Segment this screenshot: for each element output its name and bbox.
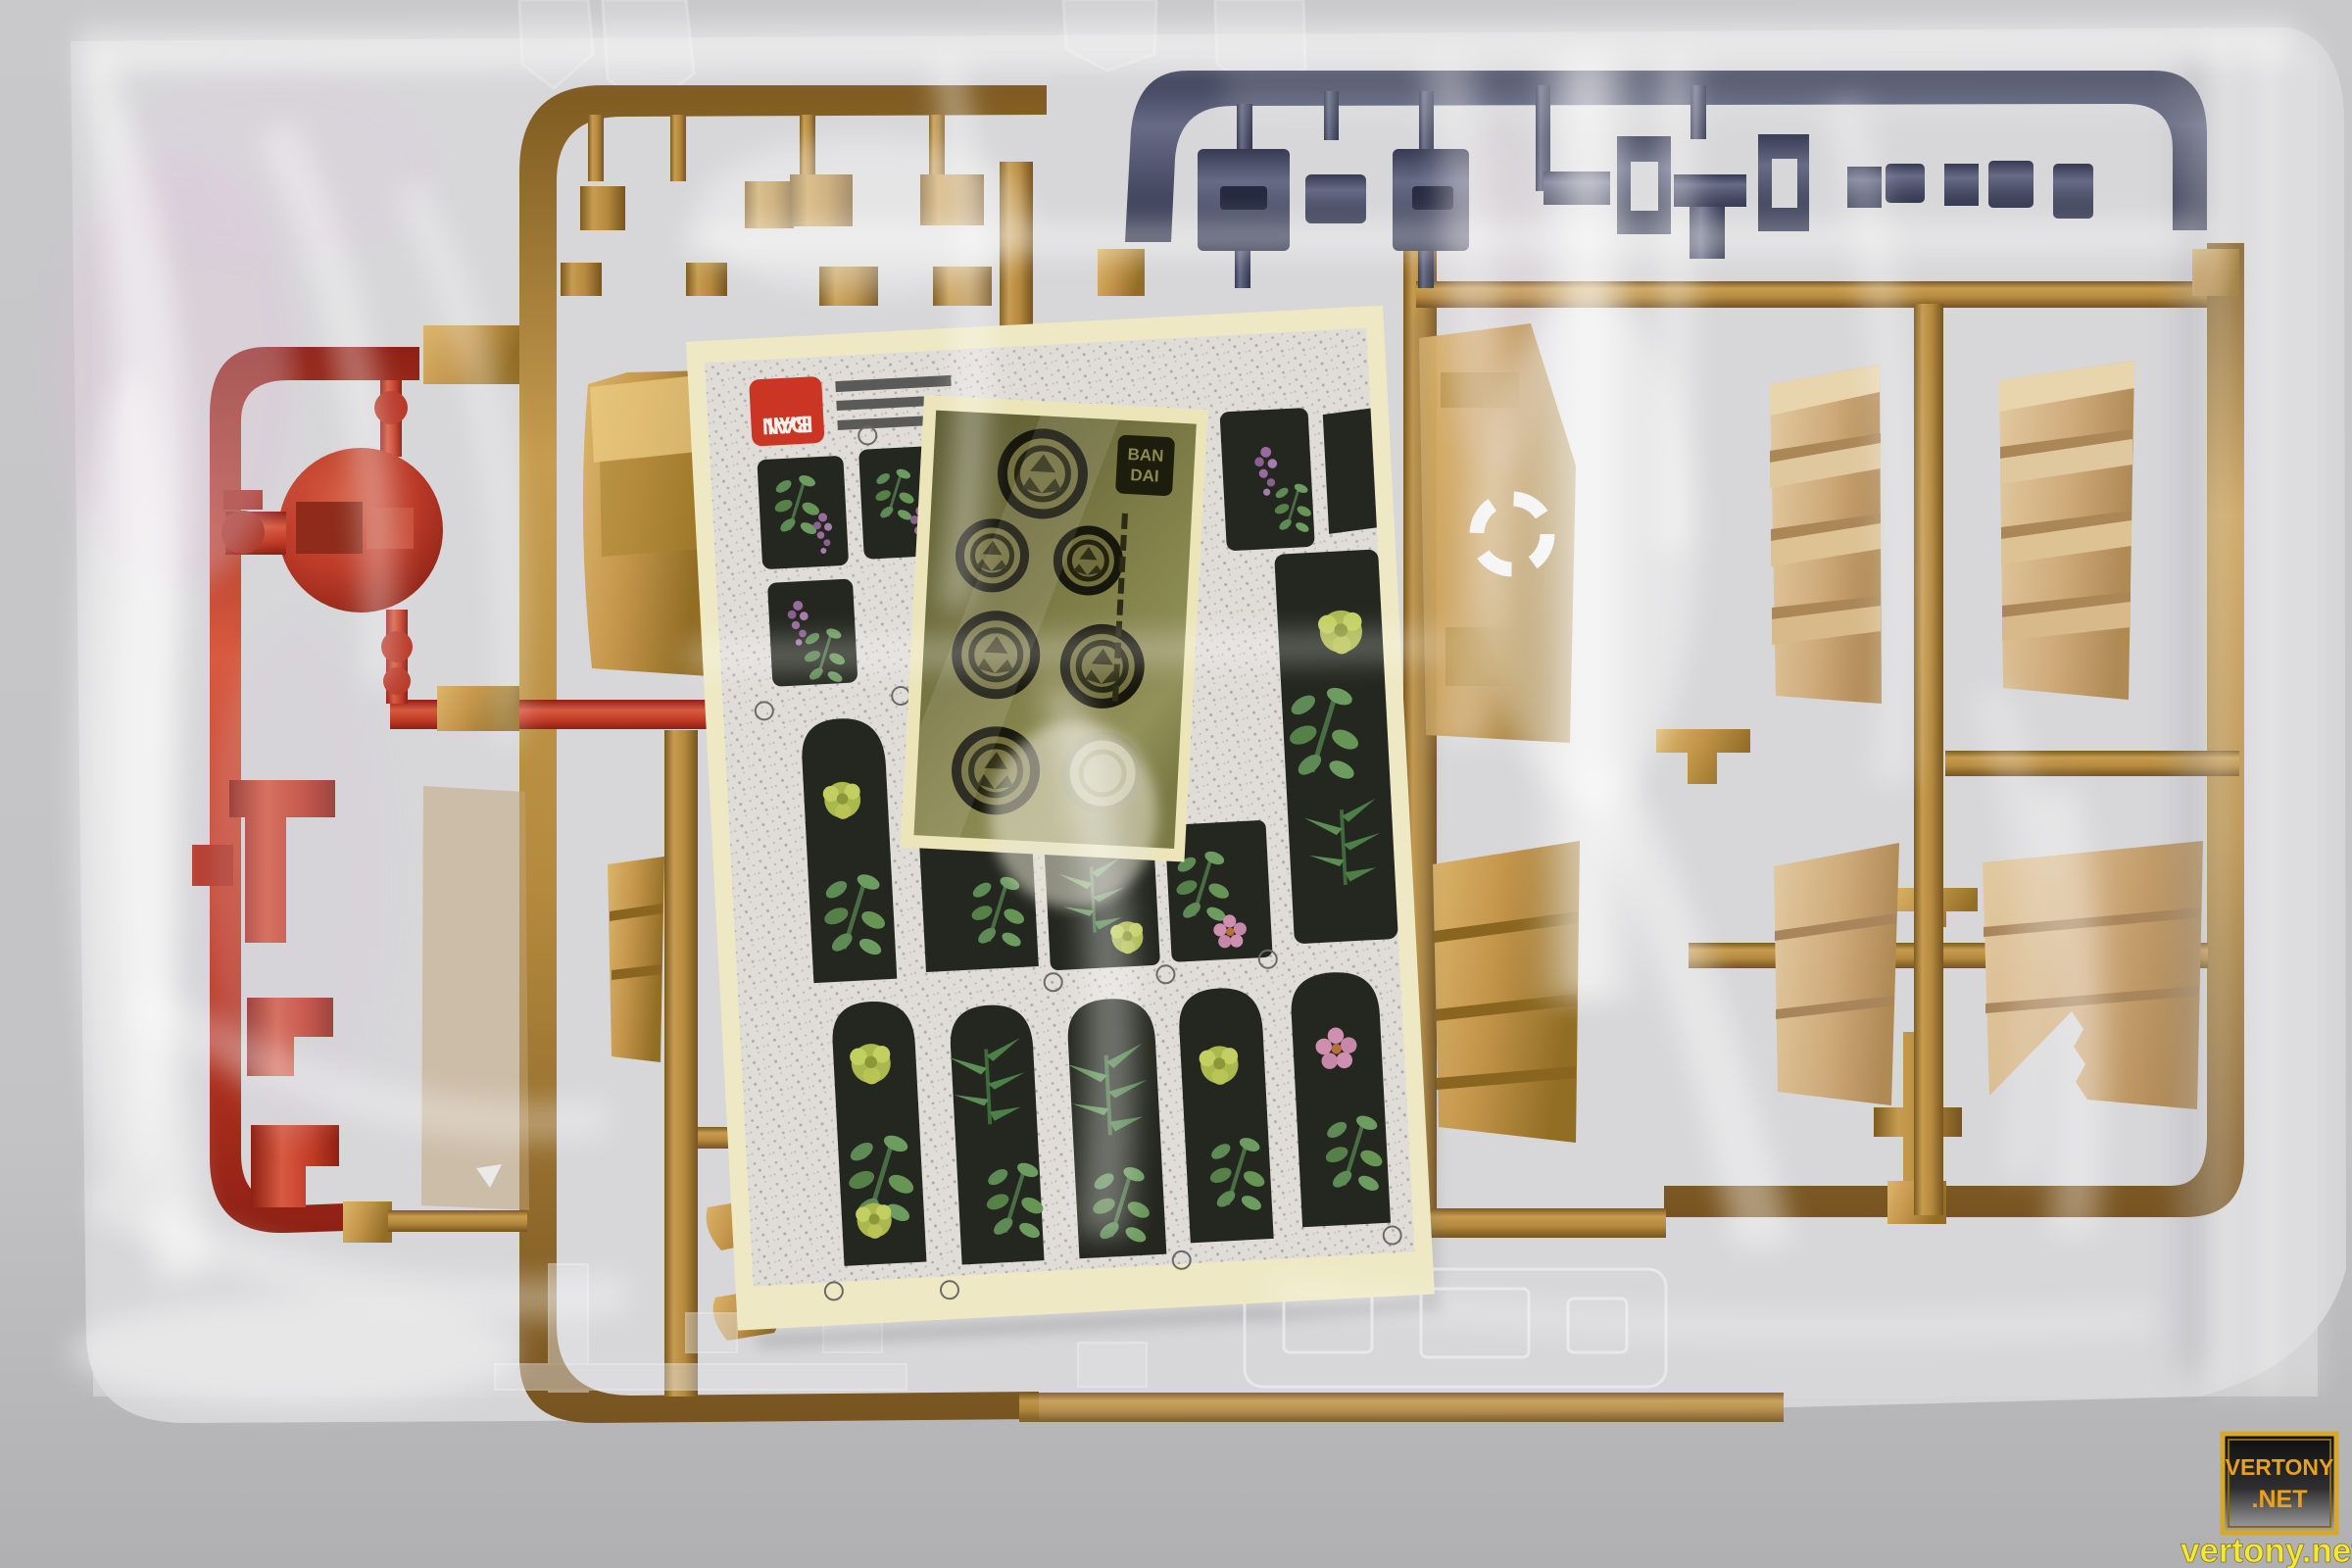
svg-text:vertony.net: vertony.net (2180, 1532, 2352, 1568)
svg-text:.NET: .NET (2252, 1486, 2308, 1513)
svg-text:DAI: DAI (1130, 465, 1159, 486)
svg-text:VERTONY: VERTONY (2226, 1454, 2334, 1480)
svg-text:DAI: DAI (766, 411, 808, 439)
svg-text:BAN: BAN (1127, 445, 1164, 465)
